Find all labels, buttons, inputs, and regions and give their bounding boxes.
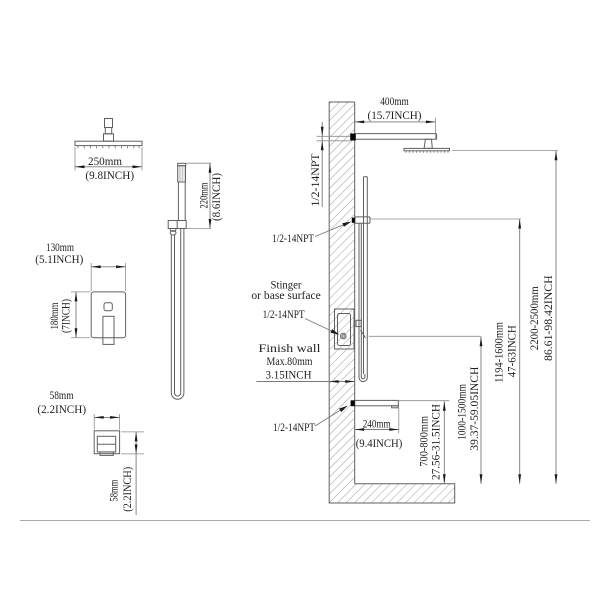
svg-text:(15.7INCH): (15.7INCH) <box>368 108 422 122</box>
svg-text:86.61-98.42INCH: 86.61-98.42INCH <box>541 275 555 361</box>
svg-text:(2.2INCH): (2.2INCH) <box>37 402 86 416</box>
svg-text:(8.6INCH): (8.6INCH) <box>209 173 223 221</box>
svg-text:2200-2500mm: 2200-2500mm <box>527 286 541 351</box>
svg-text:1194-1600mm: 1194-1600mm <box>491 321 505 382</box>
svg-text:Max.80mm: Max.80mm <box>267 354 314 368</box>
svg-text:1/2-14NPT: 1/2-14NPT <box>273 420 316 434</box>
svg-text:(7INCH): (7INCH) <box>59 299 73 333</box>
svg-text:Finish wall: Finish wall <box>259 341 322 355</box>
svg-text:(2.2INCH): (2.2INCH) <box>120 467 134 512</box>
svg-text:3.15INCH: 3.15INCH <box>266 368 312 382</box>
svg-text:250mm: 250mm <box>88 154 123 168</box>
svg-text:(9.4INCH): (9.4INCH) <box>356 436 403 450</box>
svg-text:39.37-59.05INCH: 39.37-59.05INCH <box>467 366 481 450</box>
svg-text:58mm: 58mm <box>106 479 120 501</box>
svg-text:27.56-31.5INCH: 27.56-31.5INCH <box>429 404 443 480</box>
svg-text:1/2-14NPT: 1/2-14NPT <box>308 153 322 207</box>
svg-text:(9.8INCH): (9.8INCH) <box>85 168 134 182</box>
svg-text:240mm: 240mm <box>363 417 392 431</box>
svg-text:47-63INCH: 47-63INCH <box>504 325 518 377</box>
svg-text:(5.1INCH): (5.1INCH) <box>35 252 83 266</box>
svg-text:400mm: 400mm <box>380 94 409 108</box>
svg-text:58mm: 58mm <box>50 388 75 402</box>
svg-text:or base surface: or base surface <box>251 288 320 302</box>
svg-text:1/2-14NPT: 1/2-14NPT <box>272 231 315 245</box>
svg-text:1/2-14NPT: 1/2-14NPT <box>263 307 306 321</box>
